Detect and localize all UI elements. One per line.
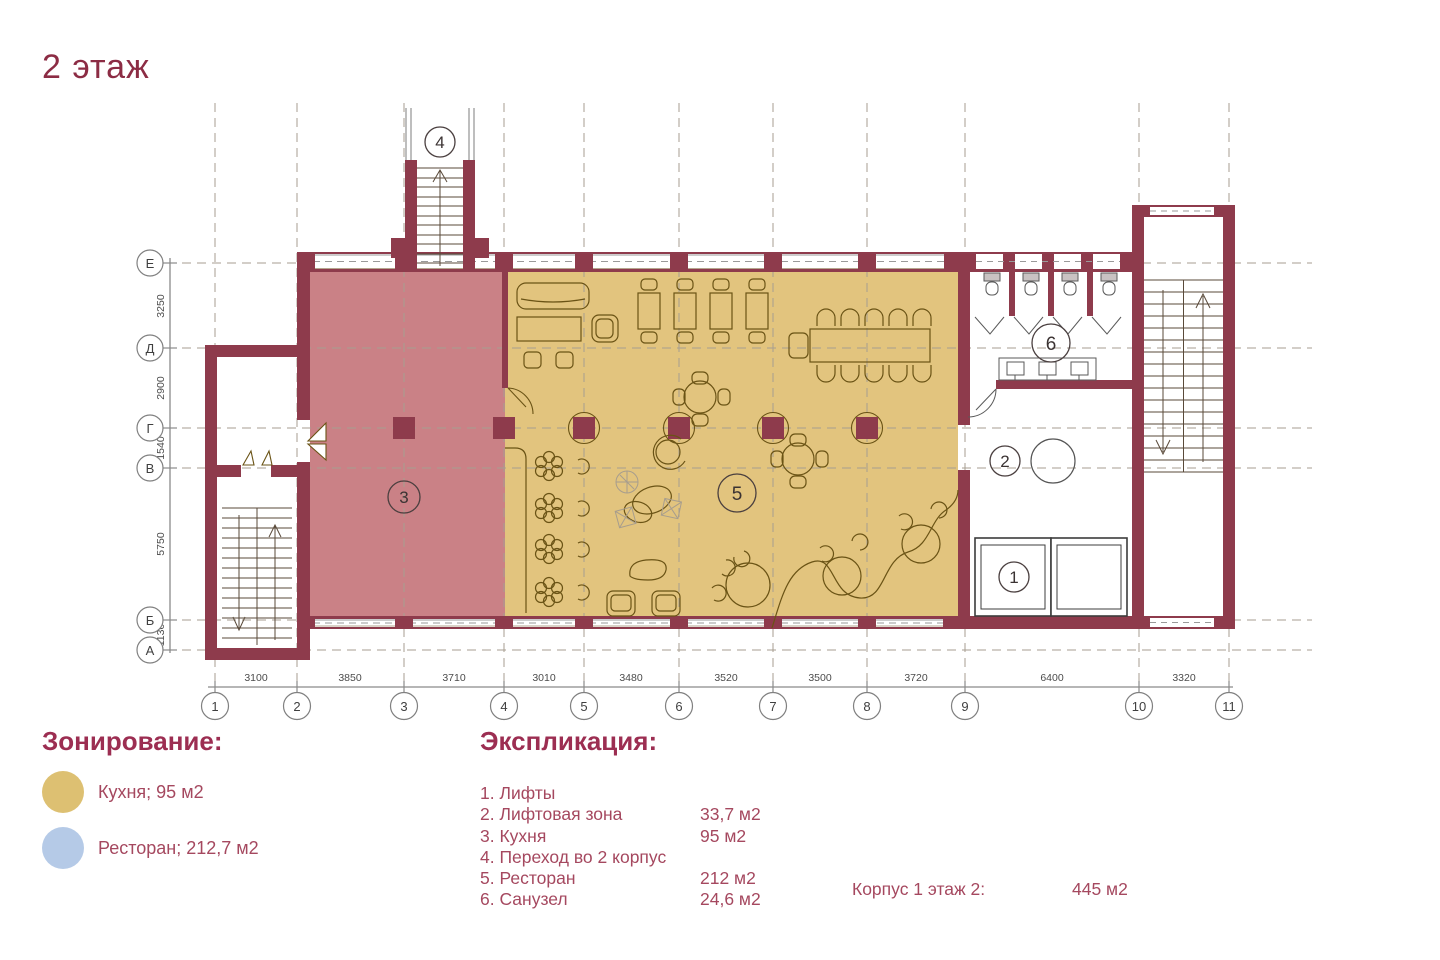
dim-bottom-8: 6400 xyxy=(1040,672,1064,684)
explication-row: 6. Санузел 24,6 м2 xyxy=(480,889,910,910)
legend-item-kitchen: Кухня; 95 м2 xyxy=(42,771,259,813)
axis-bottom-7: 8 xyxy=(863,699,870,714)
explication-row-label: 5. Ресторан xyxy=(480,868,700,889)
explication: Экспликация: 1. Лифты 2. Лифтовая зона 3… xyxy=(480,726,910,911)
stairs-left-annex xyxy=(222,508,292,645)
kitchen-legend-label: Кухня; 95 м2 xyxy=(98,782,204,803)
room-label-4: 4 xyxy=(435,133,444,152)
dim-bottom-5: 3520 xyxy=(714,672,738,684)
axis-bottom-1: 2 xyxy=(293,699,300,714)
explication-rows: 1. Лифты 2. Лифтовая зона 33,7 м2 3. Кух… xyxy=(480,783,910,911)
lift-shafts xyxy=(975,538,1127,616)
explication-row-value: 95 м2 xyxy=(700,826,746,847)
room-label-3: 3 xyxy=(399,488,408,507)
explication-row-label: 4. Переход во 2 корпус xyxy=(480,847,700,868)
explication-row-value: 33,7 м2 xyxy=(700,804,761,825)
explication-row: 3. Кухня 95 м2 xyxy=(480,826,910,847)
axis-left-5: А xyxy=(146,643,155,658)
explication-row-label: 6. Санузел xyxy=(480,889,700,910)
room-circle-6: 6 xyxy=(1032,324,1070,362)
wc-fixtures xyxy=(968,273,1121,417)
axis-bottom-5: 6 xyxy=(675,699,682,714)
dim-bottom-4: 3480 xyxy=(619,672,643,684)
axis-bottom-10: 11 xyxy=(1222,699,1236,714)
explication-row-value: 24,6 м2 xyxy=(700,889,761,910)
axis-left-2: Г xyxy=(146,421,153,436)
dim-bottom-0: 3100 xyxy=(244,672,268,684)
zoning-legend: Зонирование: Кухня; 95 м2 Ресторан; 212,… xyxy=(42,726,259,869)
dim-left-0: 3250 xyxy=(155,294,167,318)
restaurant-legend-label: Ресторан; 212,7 м2 xyxy=(98,838,259,859)
explication-row: 5. Ресторан 212 м2 xyxy=(480,868,910,889)
axis-left-4: Б xyxy=(146,613,155,628)
room-label-1: 1 xyxy=(1009,568,1018,587)
axis-bottom-0: 1 xyxy=(211,699,218,714)
dim-bottom-3: 3010 xyxy=(532,672,556,684)
explication-row-label: 2. Лифтовая зона xyxy=(480,804,700,825)
kitchen-zone xyxy=(310,272,505,616)
axis-bottom-6: 7 xyxy=(769,699,776,714)
dim-bottom-2: 3710 xyxy=(442,672,466,684)
axis-left-1: Д xyxy=(146,341,155,356)
axis-left-3: В xyxy=(146,461,155,476)
room-label-6: 6 xyxy=(1046,334,1057,355)
floor-total-value: 445 м2 xyxy=(1072,879,1128,900)
explication-row: 4. Переход во 2 корпус xyxy=(480,847,910,868)
room-circle-2: 2 xyxy=(990,446,1020,476)
dim-bottom-6: 3500 xyxy=(808,672,832,684)
dim-left-1: 2900 xyxy=(155,376,167,400)
explication-row-value: 212 м2 xyxy=(700,868,756,889)
floor-plan-svg: 4 3 5 6 2 1 xyxy=(0,0,1440,730)
axis-bottom-8: 9 xyxy=(961,699,968,714)
dim-bottom-1: 3850 xyxy=(338,672,362,684)
explication-row: 1. Лифты xyxy=(480,783,910,804)
room-circle-4: 4 xyxy=(425,127,455,157)
floor-total: Корпус 1 этаж 2: 445 м2 xyxy=(852,879,985,900)
stairs-right-block xyxy=(1144,280,1223,472)
room-label-5: 5 xyxy=(732,484,743,505)
lift-zone-table xyxy=(1031,439,1075,483)
explication-row-label: 3. Кухня xyxy=(480,826,700,847)
explication-heading: Экспликация: xyxy=(480,726,910,757)
legend-item-restaurant: Ресторан; 212,7 м2 xyxy=(42,827,259,869)
dim-bottom-7: 3720 xyxy=(904,672,928,684)
room-label-2: 2 xyxy=(1000,452,1009,471)
floor-total-label: Корпус 1 этаж 2: xyxy=(852,879,985,899)
kitchen-swatch xyxy=(42,771,84,813)
axis-bottom-9: 10 xyxy=(1132,699,1146,714)
explication-row: 2. Лифтовая зона 33,7 м2 xyxy=(480,804,910,825)
explication-row-label: 1. Лифты xyxy=(480,783,700,804)
stairs-passage-tower xyxy=(417,168,463,266)
axis-bottom-4: 5 xyxy=(580,699,587,714)
dim-left-3: 5750 xyxy=(155,532,167,556)
zoning-heading: Зонирование: xyxy=(42,726,259,757)
dim-bottom-9: 3320 xyxy=(1172,672,1196,684)
floor-plan-page: 2 этаж xyxy=(0,0,1440,960)
axis-left-0: Е xyxy=(146,256,155,271)
axis-bottom-3: 4 xyxy=(500,699,507,714)
restaurant-swatch xyxy=(42,827,84,869)
axis-bottom-2: 3 xyxy=(400,699,407,714)
